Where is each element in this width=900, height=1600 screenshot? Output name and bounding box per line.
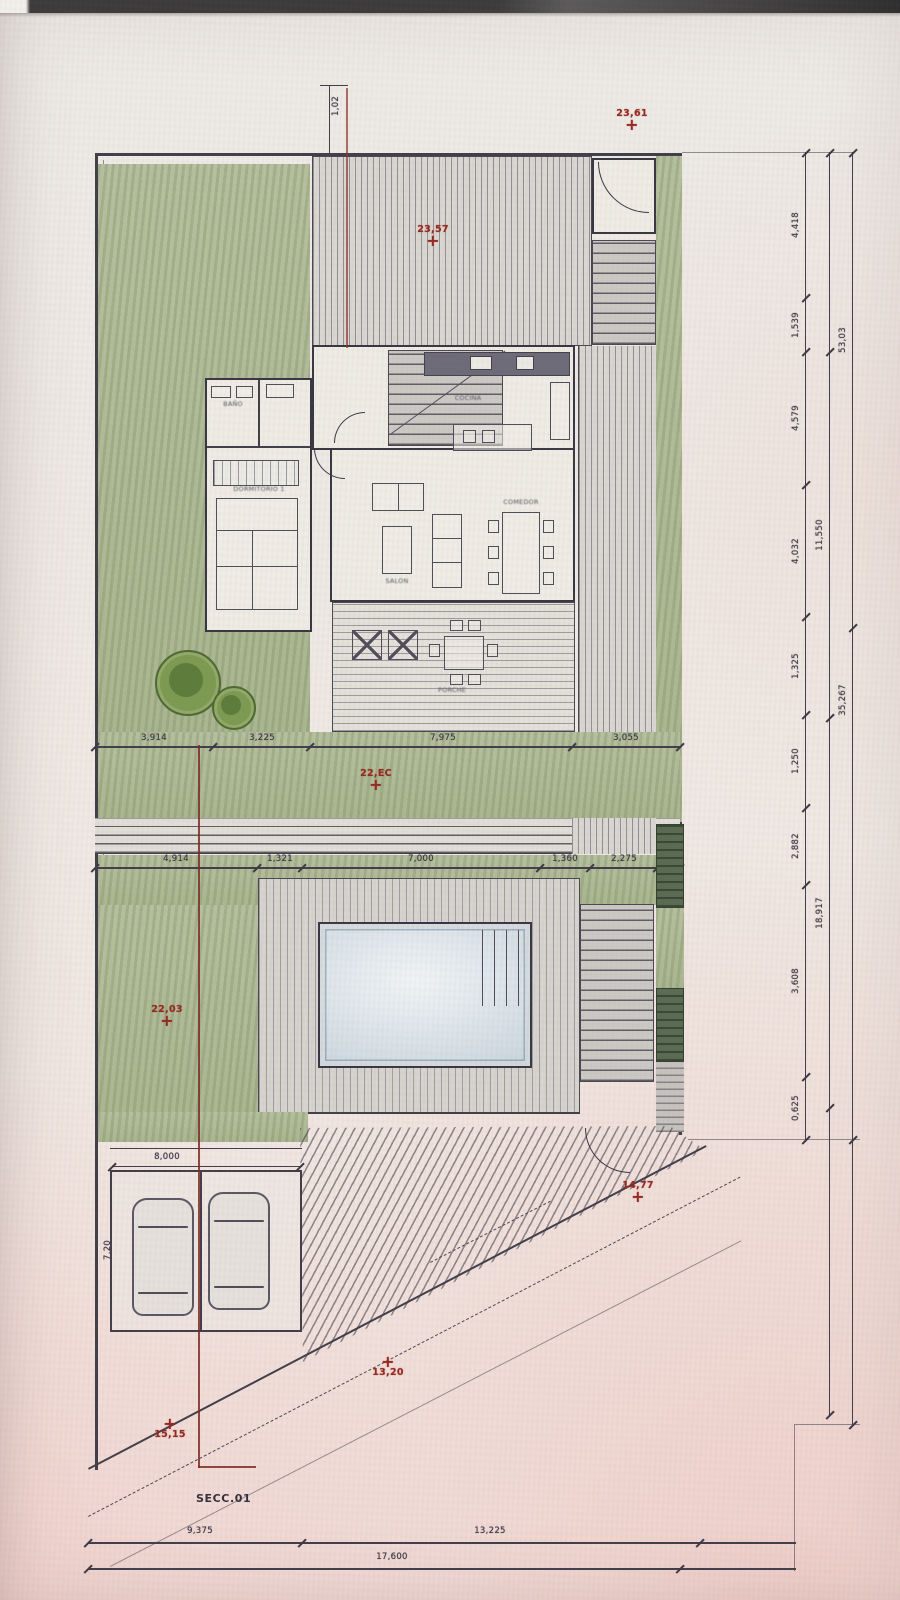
roof-terrace-hatch xyxy=(312,156,592,346)
planter-module-1 xyxy=(656,824,684,908)
sofa-b-split2 xyxy=(433,562,461,563)
dining-chair-4 xyxy=(543,520,554,533)
dim-row1-line xyxy=(95,746,680,748)
porch-chair-5 xyxy=(450,674,463,685)
dim-row1-3: 3,055 xyxy=(613,733,639,743)
porch-chair-4 xyxy=(468,620,481,631)
dining-chair-3 xyxy=(488,572,499,585)
chain-inner-2: 4,579 xyxy=(791,405,801,431)
dim-tick xyxy=(802,1136,811,1145)
cross-icon: + xyxy=(631,1191,645,1202)
section-label: SECC.01 xyxy=(196,1492,251,1505)
car-1-windshield xyxy=(138,1226,188,1228)
cross-icon: + xyxy=(160,1015,174,1026)
porch-chair-2 xyxy=(487,644,498,657)
chain-drop-line xyxy=(794,1425,795,1571)
dining-table xyxy=(502,512,540,594)
car-1 xyxy=(132,1198,194,1316)
dim-row2-1: 1,321 xyxy=(267,854,293,864)
dim-row1-0: 3,914 xyxy=(141,733,167,743)
scanned-site-plan: COCINA BAÑO DORMITORIO 1 COMEDOR SALON P… xyxy=(0,0,900,1600)
top-extension-tick xyxy=(320,85,348,86)
dim-row1-2: 7,975 xyxy=(430,733,456,743)
garage-stall-divider xyxy=(200,1170,202,1332)
chain-inner-4: 1,325 xyxy=(791,653,801,679)
bedroom-label: DORMITORIO 1 xyxy=(233,485,284,493)
planter-strip xyxy=(656,908,684,988)
exterior-stair-east xyxy=(580,904,654,1082)
scan-top-shadow xyxy=(0,13,900,17)
sofa-b xyxy=(432,514,462,588)
dim-row2-0: 4,914 xyxy=(163,854,189,864)
tree-small-core xyxy=(221,695,241,715)
survey-marker-14-77: 14,77 + xyxy=(622,1180,654,1202)
chain-inner-line xyxy=(805,152,806,1142)
porch-chair-6 xyxy=(468,674,481,685)
chain-inner-3: 4,032 xyxy=(791,538,801,564)
bath-partition xyxy=(258,380,260,446)
chain-connector-mid xyxy=(688,1139,860,1140)
section-line-foot xyxy=(198,1466,256,1468)
garage-top-line xyxy=(110,1148,302,1149)
bedroom-door-arc xyxy=(314,448,345,479)
porch-chair-3 xyxy=(450,620,463,631)
bed-line-2 xyxy=(217,566,297,567)
lawn-below-deck xyxy=(98,1112,308,1142)
dim-row2-4: 2,275 xyxy=(611,854,637,864)
chain-outer-line xyxy=(852,152,853,1425)
chain-outer-0: 53,03 xyxy=(838,327,848,353)
survey-marker-15-15: 15,15 + xyxy=(154,1418,186,1440)
right-edge-planting-strip xyxy=(656,156,682,822)
sofa-b-split1 xyxy=(433,538,461,539)
garage-dim-line xyxy=(112,1166,302,1167)
survey-marker-23-61: 23,61 + xyxy=(616,108,648,130)
cross-icon: + xyxy=(426,235,440,246)
scan-top-edge xyxy=(0,0,900,13)
chain-inner-8: 0,625 xyxy=(791,1095,801,1121)
survey-marker-22-ec: 22,EC + xyxy=(360,768,392,790)
dining-label: COMEDOR xyxy=(503,498,538,506)
bottom-dim-left: 9,375 xyxy=(187,1526,213,1536)
chain-inner-1: 1,539 xyxy=(791,312,801,338)
kitchen-label: COCINA xyxy=(455,394,482,402)
section-line xyxy=(198,745,200,1468)
porch-table xyxy=(444,636,484,670)
street-hatch xyxy=(295,1120,710,1370)
coffee-table xyxy=(382,526,412,574)
dim-tick xyxy=(849,1421,858,1430)
porch-lounger-1 xyxy=(352,630,382,660)
chain-middle-line xyxy=(829,152,830,1415)
porch-chair-1 xyxy=(429,644,440,657)
exterior-stair-top-right xyxy=(592,240,656,345)
kitchen-counter xyxy=(424,352,570,376)
chain-inner-7: 3,608 xyxy=(791,968,801,994)
cross-icon: + xyxy=(625,119,639,130)
chain-middle-1: 18,917 xyxy=(815,897,825,929)
swimming-pool xyxy=(318,922,532,1068)
dining-chair-2 xyxy=(488,546,499,559)
garage-width-dim: 8,000 xyxy=(154,1152,180,1162)
kitchen-sink xyxy=(470,356,492,370)
dim-row2-2: 7,000 xyxy=(408,854,434,864)
planter-module-2 xyxy=(656,988,684,1062)
porch-label: PORCHE xyxy=(438,686,466,694)
bottom-dim-line-1 xyxy=(88,1542,796,1544)
marker-label: 15,15 xyxy=(154,1429,186,1440)
bed-line-1 xyxy=(217,530,297,531)
cross-icon: + xyxy=(163,1418,177,1429)
dim-tick xyxy=(826,1411,835,1420)
bath-fixture-3 xyxy=(266,384,294,398)
kitchen-island-sink xyxy=(463,430,476,443)
bath-label: BAÑO xyxy=(223,400,243,408)
tree-large-core xyxy=(169,663,203,697)
bedroom-bed xyxy=(216,498,298,610)
sofa-a-split xyxy=(398,484,399,510)
cross-icon: + xyxy=(381,1356,395,1367)
survey-marker-23-57: 23,57 + xyxy=(417,224,449,246)
kitchen-island-hob xyxy=(482,430,495,443)
dim-row2-line xyxy=(95,867,680,869)
chain-outer-1: 35,267 xyxy=(838,684,848,716)
bath-fixture-1 xyxy=(211,386,231,398)
survey-marker-22-03: 22,03 + xyxy=(151,1004,183,1026)
car-2-windshield xyxy=(214,1220,264,1222)
top-small-dim: 1,02 xyxy=(331,96,341,116)
red-reference-line xyxy=(346,88,348,348)
pool-step-3 xyxy=(506,930,507,1006)
bath-wall xyxy=(207,446,310,448)
garage-side-dim: 7,20 xyxy=(103,1240,113,1260)
bottom-dim-mid: 13,225 xyxy=(474,1526,506,1536)
bottom-dim-line-2 xyxy=(88,1568,796,1570)
bath-fixture-2 xyxy=(236,386,253,398)
dim-row2-3: 1,360 xyxy=(552,854,578,864)
porch-lounger-2 xyxy=(388,630,418,660)
chain-inner-5: 1,250 xyxy=(791,748,801,774)
dining-chair-1 xyxy=(488,520,499,533)
survey-marker-13-20: 13,20 + xyxy=(372,1356,404,1378)
pool-step-4 xyxy=(518,930,519,1006)
bottom-dim-total: 17,600 xyxy=(376,1552,408,1562)
cross-icon: + xyxy=(369,779,383,790)
dim-row1-1: 3,225 xyxy=(249,733,275,743)
dining-chair-5 xyxy=(543,546,554,559)
kitchen-hob xyxy=(516,356,534,370)
bedroom-wardrobe xyxy=(213,460,299,486)
chain-middle-0: 11,550 xyxy=(815,519,825,551)
car-2 xyxy=(208,1192,270,1310)
path-band-right-hatch xyxy=(572,818,656,854)
marker-label: 13,20 xyxy=(372,1367,404,1378)
living-label: SALON xyxy=(385,577,408,585)
chain-inner-6: 2,882 xyxy=(791,833,801,859)
pool-step-2 xyxy=(494,930,495,1006)
bed-line-3 xyxy=(252,531,253,609)
kitchen-tall-units xyxy=(550,382,570,440)
car-2-rear-window xyxy=(214,1286,264,1288)
dining-chair-6 xyxy=(543,572,554,585)
chain-inner-0: 4,418 xyxy=(791,212,801,238)
pool-step-1 xyxy=(482,930,483,1006)
edge-module-3 xyxy=(656,1062,684,1132)
car-1-rear-window xyxy=(138,1292,188,1294)
